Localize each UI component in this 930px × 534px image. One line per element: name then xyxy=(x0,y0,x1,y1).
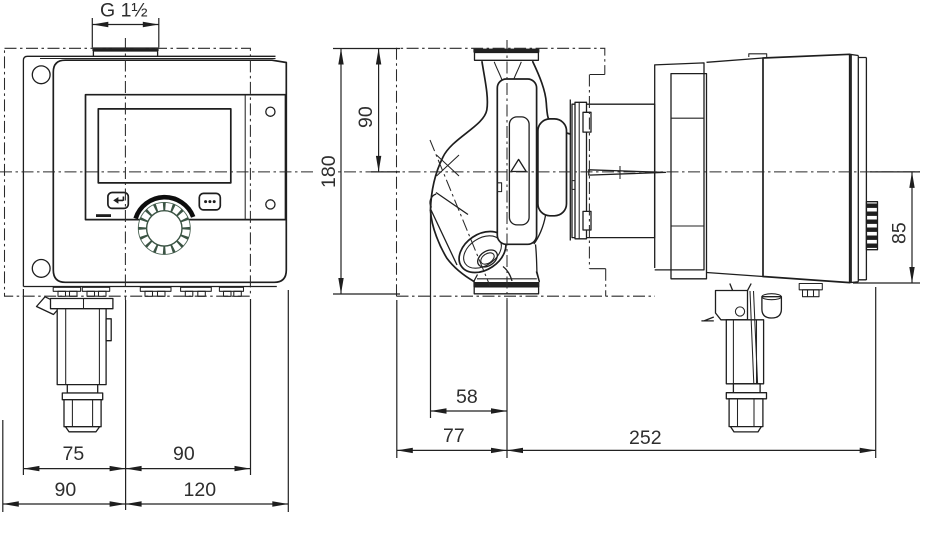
svg-text:58: 58 xyxy=(456,386,478,408)
svg-text:75: 75 xyxy=(63,443,85,465)
svg-text:120: 120 xyxy=(184,479,217,501)
svg-text:252: 252 xyxy=(629,427,662,449)
svg-text:90: 90 xyxy=(55,479,77,501)
svg-text:90: 90 xyxy=(355,106,377,128)
svg-text:G 1½: G 1½ xyxy=(100,0,148,22)
svg-text:180: 180 xyxy=(318,155,340,188)
svg-text:77: 77 xyxy=(443,425,465,447)
svg-text:85: 85 xyxy=(889,222,911,244)
svg-text:90: 90 xyxy=(173,443,195,465)
